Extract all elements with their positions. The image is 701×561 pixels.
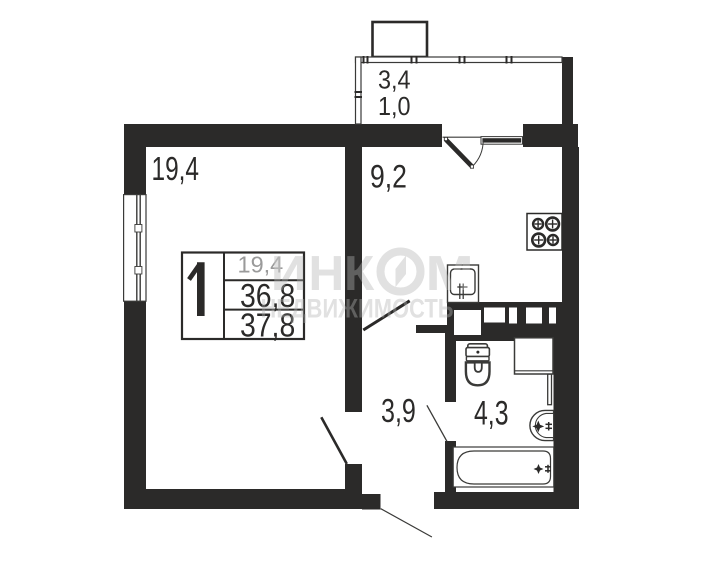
- svg-text:9,2: 9,2: [370, 159, 407, 195]
- svg-text:3,4: 3,4: [378, 66, 411, 94]
- svg-text:19,4: 19,4: [152, 152, 200, 188]
- svg-text:4,3: 4,3: [474, 395, 508, 433]
- svg-text:1,0: 1,0: [378, 93, 411, 121]
- svg-text:3,9: 3,9: [381, 393, 416, 430]
